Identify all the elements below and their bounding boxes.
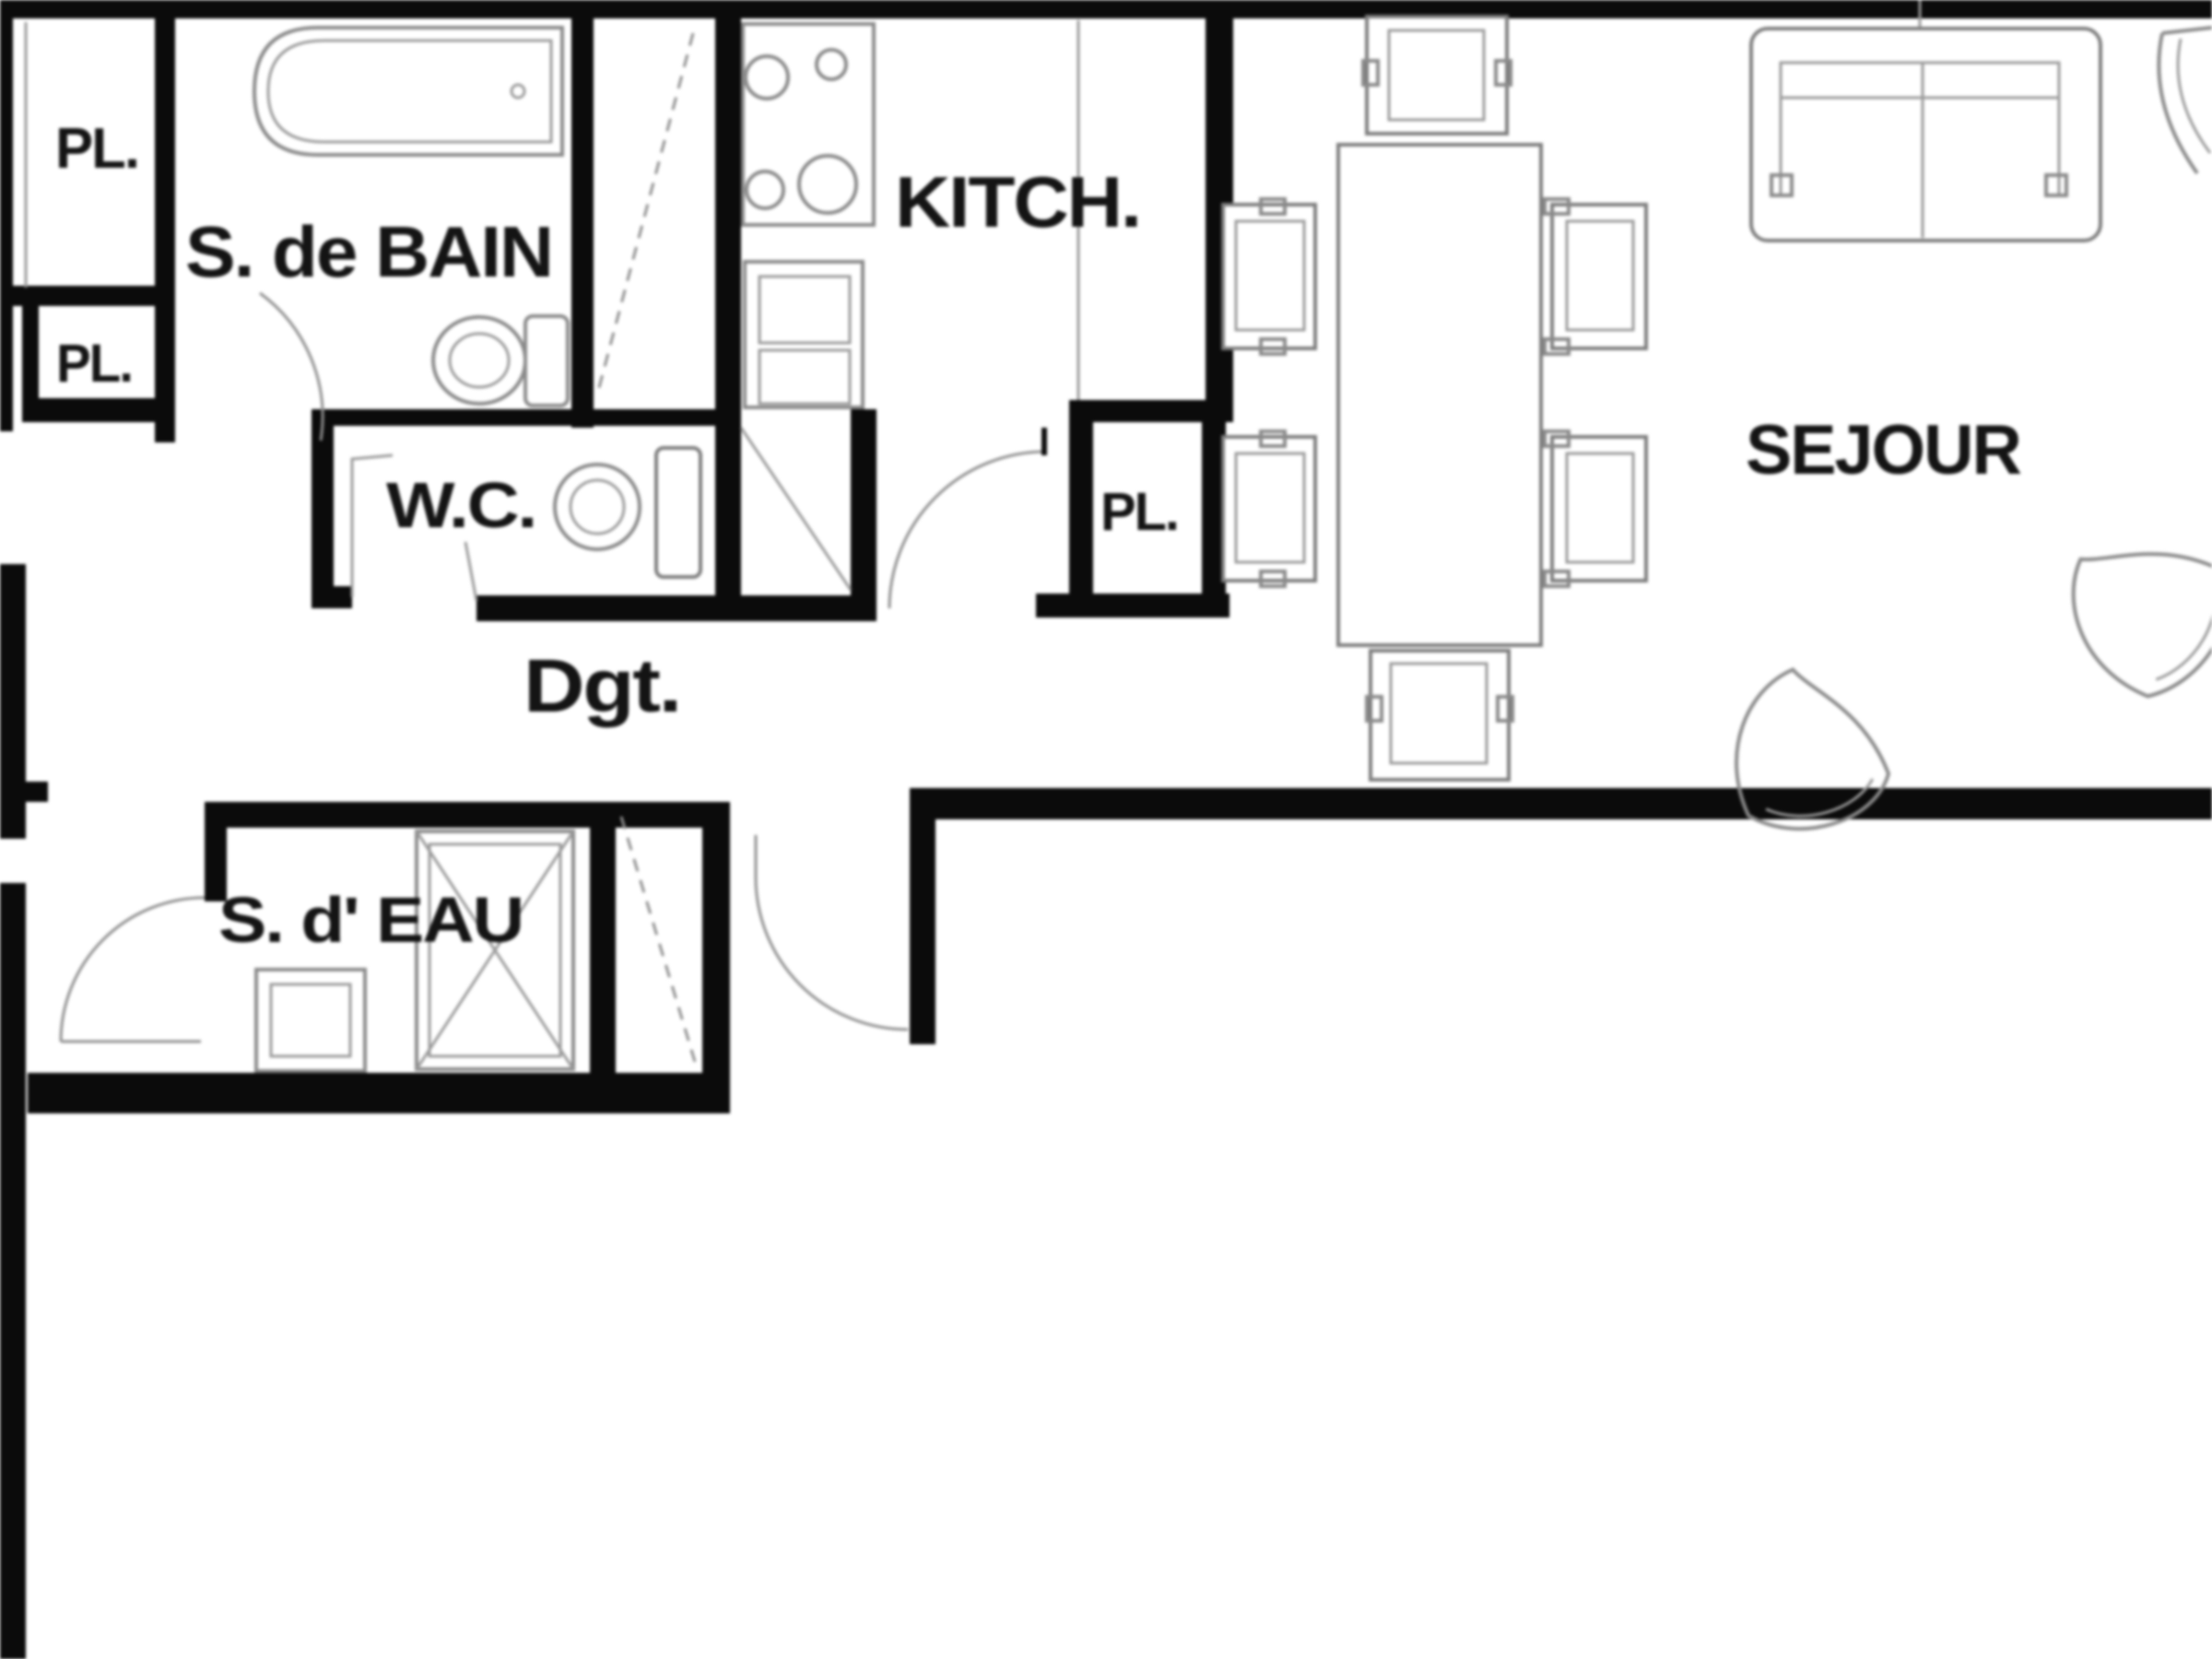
wall-top: [0, 0, 2212, 18]
wall-placard-right: [155, 17, 175, 442]
corner-armchair-icon: [2159, 28, 2212, 173]
toilet-bathroom-icon: [433, 316, 568, 406]
dining-chair-left-lower-icon: [1223, 431, 1315, 586]
door-swing-corridor: [756, 877, 908, 1030]
kitchen-sink-unit-icon: [745, 262, 863, 407]
wall-wc-left: [312, 409, 334, 599]
wall-left-lower: [0, 883, 26, 1659]
wall-corridor-downstroke: [910, 788, 935, 1044]
floor-plan-drawing: PL. PL. S. de BAIN W.C. KITCH. PL. Dgt. …: [0, 0, 2212, 1659]
wall-left-middle-foot: [26, 782, 48, 802]
door-swing-degagement-kitchen: [889, 452, 1046, 608]
wall-placard-kitchen-left: [1069, 400, 1093, 616]
label-placard-kitchen: PL.: [1100, 482, 1178, 542]
label-wc: W.C.: [386, 469, 535, 541]
label-degagement: Dgt.: [524, 644, 680, 728]
wall-eau-divider: [590, 809, 616, 1086]
dining-chair-top-icon: [1363, 17, 1511, 134]
label-kitchen: KITCH.: [895, 161, 1140, 242]
wall-wc-top: [312, 409, 741, 426]
bathtub-icon: [254, 28, 562, 155]
washbasin-icon: [256, 970, 365, 1071]
toilet-wc-icon: [555, 448, 700, 577]
wall-eau-right: [702, 802, 730, 1099]
wall-wc-bottom: [477, 595, 877, 621]
wall-placard-divider: [9, 286, 157, 306]
wall-left-middle: [0, 564, 26, 839]
wall-left-upper: [0, 0, 13, 431]
duct-shaft-diagonal-icon: [741, 428, 851, 590]
door-dashed-kitchen: [597, 33, 693, 394]
fan-armchair-right-icon: [2036, 500, 2212, 714]
label-placard-lower: PL.: [56, 334, 132, 394]
wall-eau-top: [205, 802, 702, 828]
door-dashed-eau-compartment: [621, 817, 695, 1062]
dining-table-icon: [1338, 145, 1541, 645]
wall-bathroom-right: [571, 17, 594, 428]
dining-chair-right-upper-icon: [1545, 199, 1646, 354]
label-salle-de-bain: S. de BAIN: [185, 211, 552, 292]
door-swing-eau-left: [61, 898, 205, 1041]
dining-chair-bottom-icon: [1367, 651, 1512, 780]
sofa-icon: [1751, 29, 2100, 241]
door-leaf-wc: [465, 542, 477, 601]
floor-plan: PL. PL. S. de BAIN W.C. KITCH. PL. Dgt. …: [0, 0, 2212, 1659]
label-sejour: SEJOUR: [1746, 411, 2021, 489]
wall-wc-left-foot: [312, 586, 352, 608]
wall-placard2-bottom: [22, 398, 157, 422]
label-placard-upper: PL.: [55, 117, 138, 181]
wall-kitchen-left: [715, 17, 741, 608]
wall-sejour-bottom: [910, 788, 2212, 819]
dining-chair-left-upper-icon: [1223, 199, 1315, 354]
label-salle-d-eau: S. d' EAU: [218, 884, 523, 956]
room-labels: PL. PL. S. de BAIN W.C. KITCH. PL. Dgt. …: [55, 117, 2021, 956]
sejour-furniture: [1223, 17, 2212, 841]
wall-placard-kitchen-bottom: [1036, 594, 1230, 618]
wall-wc-right: [851, 409, 877, 621]
stove-icon: [743, 24, 874, 225]
wall-eau-bottom: [28, 1073, 730, 1113]
dining-chair-right-lower-icon: [1545, 431, 1646, 586]
door-leaf-degagement: [1041, 428, 1047, 455]
